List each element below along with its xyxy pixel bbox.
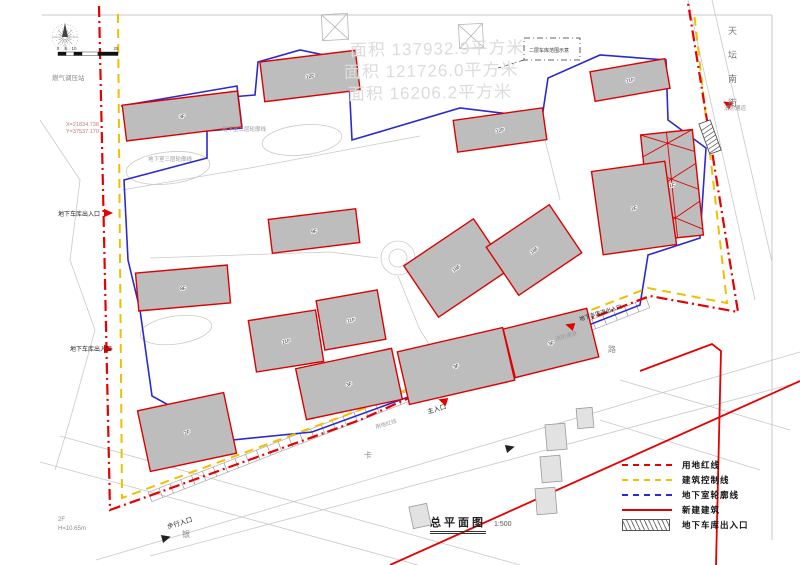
context-building	[540, 455, 562, 483]
building-footprint: 2F	[138, 393, 237, 472]
scale-bar-segment	[58, 52, 66, 56]
legend-item: 建筑控制线	[622, 473, 772, 487]
legend-item: 地下室轮廓线	[622, 488, 772, 502]
legend-swatch-dashed	[622, 479, 674, 481]
building-footprint: 9F	[268, 209, 359, 253]
annotation-label: 用地红线	[374, 417, 398, 431]
building-label: 3F	[179, 114, 186, 121]
annotation-label: 银	[182, 529, 190, 539]
drawing-title-text: 总平面图	[430, 514, 486, 534]
scale-bar: 051025	[57, 46, 119, 56]
legend-label: 地下车库出入口	[682, 519, 749, 531]
legend-label: 建筑控制线	[682, 474, 730, 486]
entry-arrow	[505, 443, 516, 453]
building-footprint: 12F	[453, 108, 547, 152]
street-name-char: 天	[728, 26, 737, 36]
annotation-label: 步行入口	[166, 515, 193, 531]
building-footprint: 11F	[316, 290, 386, 350]
context-building	[576, 407, 594, 428]
street-name-char: 南	[728, 73, 737, 84]
context-road-line	[122, 136, 420, 190]
annotation-label: Y=37537.170	[66, 129, 99, 135]
street-name-char: 坛	[728, 50, 737, 60]
drawing-scale: 1:500	[494, 521, 512, 528]
building-footprint: 18F	[486, 205, 581, 296]
context-building-outline	[409, 503, 431, 528]
legend-swatch-dashed	[622, 494, 674, 496]
legend-item: 用地红线	[622, 458, 772, 472]
landscape-oval	[138, 311, 213, 349]
scale-bar-mark: 25	[113, 46, 119, 51]
building-label: 11F	[282, 338, 291, 345]
parking-stall-tick	[148, 492, 152, 501]
context-road-line	[620, 380, 790, 430]
annotation-label: 燃气调压站	[52, 73, 85, 82]
annotation-label: 地下室三层轮廓线	[148, 155, 193, 163]
drawing-title: 总平面图 1:500	[430, 514, 512, 534]
annotation-label: X=21834.738	[66, 122, 99, 128]
crossed-box	[321, 13, 348, 40]
area-note: 面积 16206.2平方米	[348, 82, 512, 104]
building-footprint: 2F	[592, 161, 677, 254]
context-building	[409, 503, 431, 528]
building-label: 9F	[311, 229, 318, 236]
annotation-label: 2F	[58, 517, 65, 523]
annotation-label: H=10.65m	[58, 526, 86, 532]
building-label: 2F	[184, 429, 191, 436]
area-note: 面积 121726.0平方米	[344, 60, 519, 82]
context-building-outline	[535, 487, 557, 515]
scale-bar-mark: 10	[71, 46, 77, 51]
legend-swatch-hatch	[622, 519, 674, 531]
annotation-label: 卡	[364, 450, 372, 460]
scale-bar-segment	[98, 52, 118, 56]
context-building	[545, 423, 567, 451]
legend-label: 地下室轮廓线	[682, 489, 739, 501]
building-footprint: 11F	[248, 310, 323, 372]
landscape-oval	[261, 121, 344, 159]
context-road-line	[150, 252, 378, 258]
context-road-line	[712, 0, 772, 262]
garage-entry-arrow	[104, 209, 113, 217]
parking-stall-tick	[224, 463, 228, 472]
annotation-label: 地下车库出入口	[58, 210, 100, 218]
building-footprint: 18F	[404, 219, 508, 317]
context-building-outline	[545, 423, 567, 451]
legend-item: 新建建筑	[622, 503, 772, 517]
building-footprint: 8F	[136, 265, 231, 311]
building-label: 3F	[346, 381, 353, 388]
legend: 用地红线建筑控制线地下室轮廓线新建建筑地下车库出入口	[622, 458, 772, 533]
parking-stall-tick	[278, 442, 282, 451]
context-building-outline	[576, 407, 594, 428]
site-plan-page: 3F12F12F11F1F2F8F9F18F18F11F11F3F3F3F2F面…	[0, 0, 800, 565]
scale-bar-segment	[66, 52, 74, 56]
annotation-label: 主入口	[426, 402, 447, 416]
legend-swatch-dash-dot	[622, 464, 674, 466]
street-name-char: 街	[728, 97, 737, 108]
building-footprint: 11F	[590, 59, 670, 102]
roundabout-inner	[389, 249, 407, 267]
annotation-label: 地下室二层轮廓线	[222, 125, 267, 133]
context-road-line	[40, 120, 95, 470]
legend-label: 用地红线	[682, 459, 720, 471]
legend-item: 地下车库出入口	[622, 518, 772, 532]
building-label: 8F	[180, 286, 186, 292]
legend-swatch-solid	[622, 509, 674, 511]
garage-ramp	[699, 120, 721, 154]
compass-north-pointer	[62, 23, 68, 37]
building-label: 2F	[631, 206, 638, 213]
building-footprint: 3F	[122, 91, 242, 141]
context-building-outline	[540, 455, 562, 483]
context-road-line	[40, 462, 418, 565]
legend-label: 新建建筑	[682, 504, 720, 516]
annotation-label: 路	[608, 344, 616, 354]
scale-bar-segment	[82, 52, 98, 56]
annotation-label: 地下车库出入口	[70, 345, 112, 353]
building-label: 12F	[495, 127, 504, 134]
building-label: 1F	[669, 183, 675, 190]
annotation-label: 二层车库范围示意	[529, 47, 569, 54]
area-note: 面积 137932.9平方米	[350, 38, 525, 60]
scale-bar-segment	[74, 52, 82, 56]
parking-stall-tick	[646, 298, 650, 307]
crossed-box-diag	[321, 13, 348, 40]
context-building	[535, 487, 557, 515]
scale-bar-mark: 5	[65, 46, 68, 51]
building-label: 12F	[305, 73, 314, 80]
scale-bar-mark: 0	[57, 46, 60, 51]
building-footprint: 3F	[397, 328, 514, 405]
